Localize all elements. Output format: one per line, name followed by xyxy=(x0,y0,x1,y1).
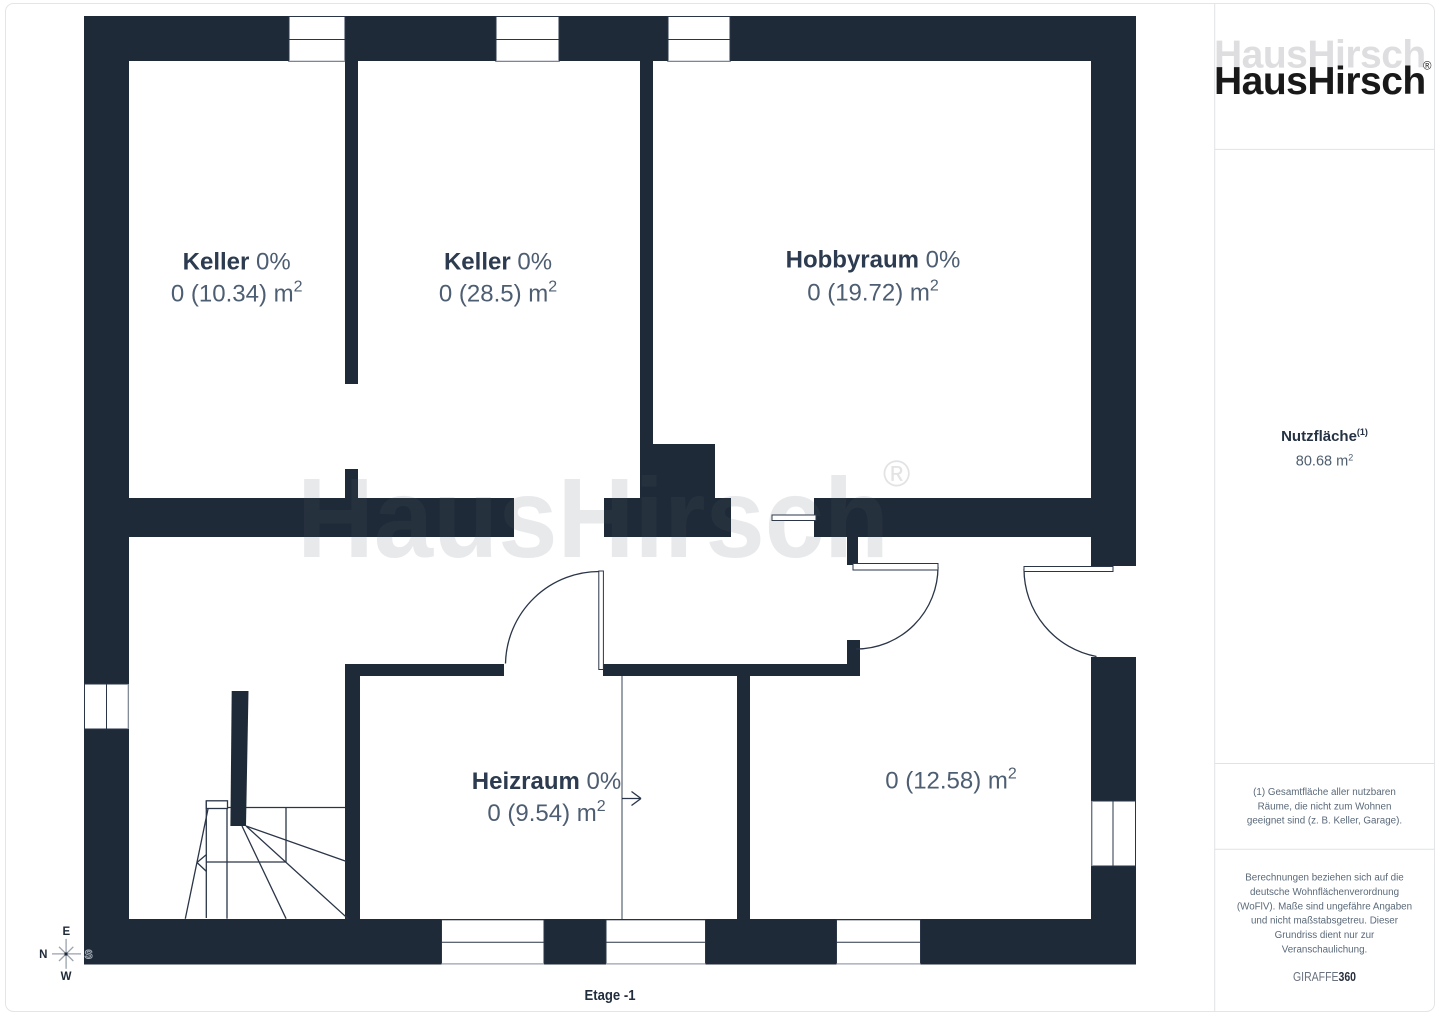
svg-text:Etage -1: Etage -1 xyxy=(585,987,636,1004)
svg-text:Räume, die nicht zum Wohnen: Räume, die nicht zum Wohnen xyxy=(1258,801,1392,812)
svg-text:0 (12.58) m2: 0 (12.58) m2 xyxy=(885,766,1017,795)
svg-text:0 (10.34) m2: 0 (10.34) m2 xyxy=(171,279,303,308)
svg-text:GIRAFFE360: GIRAFFE360 xyxy=(1293,970,1356,984)
svg-text:S: S xyxy=(85,948,93,962)
svg-text:Berechnungen beziehen sich auf: Berechnungen beziehen sich auf die xyxy=(1245,873,1404,884)
svg-text:E: E xyxy=(62,926,70,938)
svg-text:Keller 0%: Keller 0% xyxy=(183,249,291,276)
svg-text:(WoFlV). Maße sind ungefähre A: (WoFlV). Maße sind ungefähre Angaben xyxy=(1237,901,1412,912)
svg-text:Nutzfläche(1): Nutzfläche(1) xyxy=(1281,427,1368,445)
svg-text:0 (19.72) m2: 0 (19.72) m2 xyxy=(807,278,939,307)
svg-text:HausHirsch: HausHirsch xyxy=(297,455,889,581)
svg-text:0 (9.54) m2: 0 (9.54) m2 xyxy=(487,798,605,827)
svg-text:80.68 m2: 80.68 m2 xyxy=(1296,453,1353,470)
svg-text:®: ® xyxy=(1423,61,1432,73)
svg-text:N: N xyxy=(39,949,47,961)
svg-text:deutsche Wohnflächenverordnung: deutsche Wohnflächenverordnung xyxy=(1250,887,1399,898)
svg-text:Heizraum 0%: Heizraum 0% xyxy=(472,768,621,795)
svg-text:Grundriss dient nur zur: Grundriss dient nur zur xyxy=(1275,930,1375,941)
svg-text:HausHirsch: HausHirsch xyxy=(1214,60,1426,103)
svg-text:Keller 0%: Keller 0% xyxy=(444,249,552,276)
svg-text:(1) Gesamtfläche aller nutzbar: (1) Gesamtfläche aller nutzbaren xyxy=(1253,787,1396,798)
svg-text:geeignet sind (z. B. Keller, G: geeignet sind (z. B. Keller, Garage). xyxy=(1247,816,1402,827)
svg-text:W: W xyxy=(61,971,72,983)
svg-text:Hobbyraum 0%: Hobbyraum 0% xyxy=(786,247,961,274)
svg-text:und nicht maßstabsgetreu. Dies: und nicht maßstabsgetreu. Dieser xyxy=(1251,916,1399,927)
svg-text:0 (28.5) m2: 0 (28.5) m2 xyxy=(439,279,557,308)
svg-text:Veranschaulichung.: Veranschaulichung. xyxy=(1282,944,1368,955)
